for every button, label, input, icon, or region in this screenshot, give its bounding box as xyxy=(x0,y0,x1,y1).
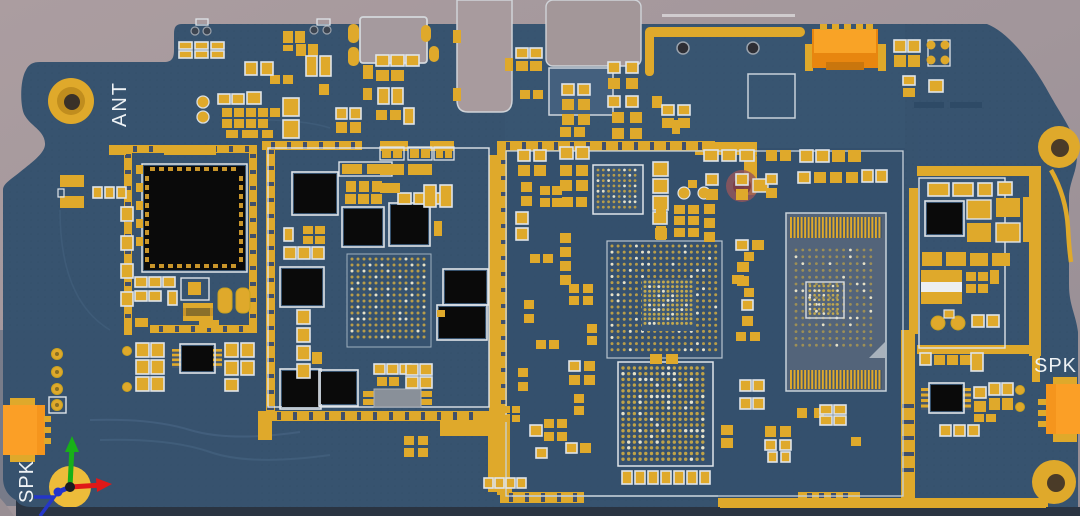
svg-text:SPK: SPK xyxy=(1034,355,1077,377)
svg-text:ANT: ANT xyxy=(109,81,131,127)
